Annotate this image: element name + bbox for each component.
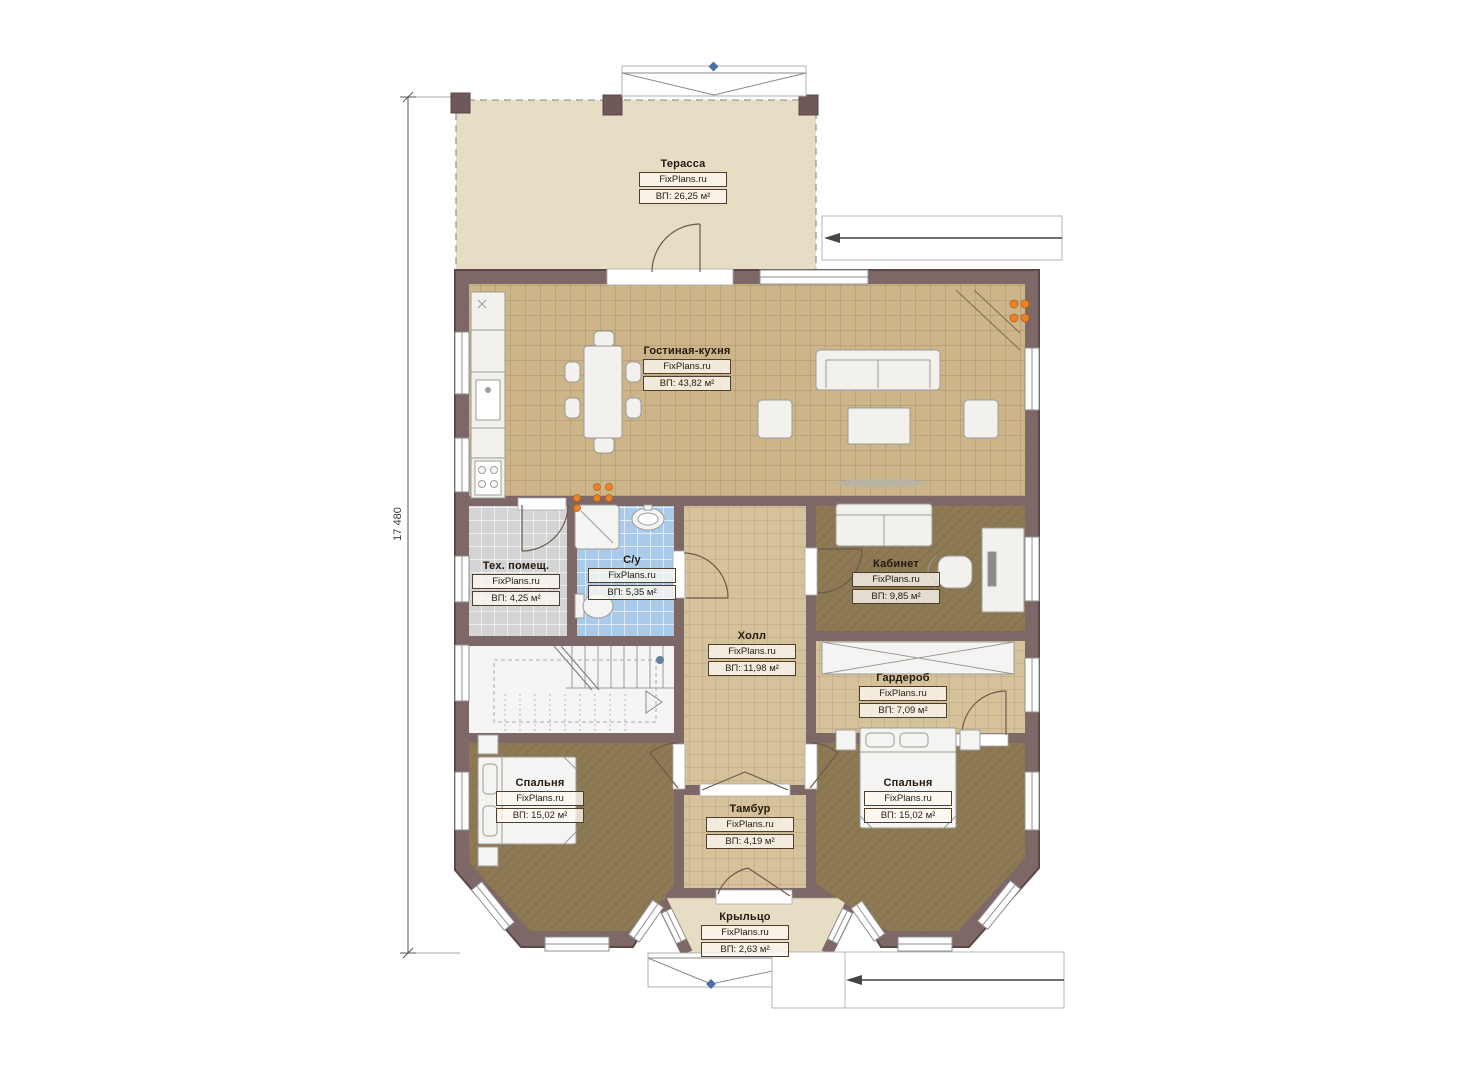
dining-chair (626, 362, 641, 382)
room-area: ВП: 26,25 м² (639, 189, 727, 204)
entrance-door-gap (716, 890, 792, 904)
armchair (758, 400, 792, 438)
room-brand: FixPlans.ru (706, 817, 794, 832)
window (455, 645, 469, 701)
room-area: ВП: 15,02 м² (864, 808, 952, 823)
living-kitchen-floor (469, 284, 1025, 496)
window (455, 332, 469, 394)
terrace-floor (456, 100, 816, 272)
room-brand: FixPlans.ru (639, 172, 727, 187)
nightstand (836, 730, 856, 750)
room-name: Холл (708, 630, 796, 642)
window (455, 556, 469, 602)
annotation-box-bottom (772, 952, 1064, 1008)
room-brand: FixPlans.ru (643, 359, 731, 374)
monitor (988, 552, 996, 586)
window (898, 937, 952, 951)
pillow (866, 733, 894, 747)
office-chair (938, 556, 972, 588)
tv-console (836, 479, 926, 487)
stair-marker (656, 656, 664, 664)
room-name: Крыльцо (701, 911, 789, 923)
dimension-line: 17 480 (392, 92, 460, 958)
tech-door-gap (518, 498, 566, 510)
room-brand: FixPlans.ru (864, 791, 952, 806)
terrace-column (603, 95, 622, 115)
kitchen-counter (471, 292, 505, 498)
kitchen-sink (476, 380, 500, 420)
room-label-bathroom: С/у FixPlans.ru ВП: 5,35 м² (588, 554, 676, 600)
dining-chair (594, 437, 614, 453)
window (1025, 348, 1039, 410)
window (1025, 658, 1039, 712)
room-name: Терасса (639, 158, 727, 170)
room-label-bedroom-right: Спальня FixPlans.ru ВП: 15,02 м² (864, 777, 952, 823)
room-name: Спальня (864, 777, 952, 789)
room-brand: FixPlans.ru (496, 791, 584, 806)
nightstand (478, 847, 498, 866)
room-brand: FixPlans.ru (472, 574, 560, 589)
dining-table (584, 346, 622, 438)
room-label-terrace: Терасса FixPlans.ru ВП: 26,25 м² (639, 158, 727, 204)
dining-chair (594, 331, 614, 347)
room-label-bedroom-left: Спальня FixPlans.ru ВП: 15,02 м² (496, 777, 584, 823)
floor-plan: 17 480 (0, 0, 1474, 1080)
window (1025, 772, 1039, 830)
room-area: ВП: 43,82 м² (643, 376, 731, 391)
terrace-canopy-marking (622, 62, 806, 96)
window (1025, 537, 1039, 601)
room-name: С/у (588, 554, 676, 566)
window (455, 772, 469, 830)
dining-chair (565, 398, 580, 418)
room-brand: FixPlans.ru (852, 572, 940, 587)
room-area: ВП: 5,35 м² (588, 585, 676, 600)
room-label-living-kitchen: Гостиная-кухня FixPlans.ru ВП: 43,82 м² (643, 345, 731, 391)
annotation-box-top (822, 216, 1062, 260)
room-brand: FixPlans.ru (701, 925, 789, 940)
dining-chair (565, 362, 580, 382)
room-name: Тамбур (706, 803, 794, 815)
coffee-table (848, 408, 910, 444)
nightstand (960, 730, 980, 750)
room-brand: FixPlans.ru (708, 644, 796, 659)
room-area: ВП: 4,25 м² (472, 591, 560, 606)
bedroom-left-door-gap (673, 744, 685, 789)
room-label-porch: Крыльцо FixPlans.ru ВП: 2,63 м² (701, 911, 789, 957)
room-area: ВП: 11,98 м² (708, 661, 796, 676)
room-area: ВП: 2,63 м² (701, 942, 789, 957)
room-label-hall: Холл FixPlans.ru ВП: 11,98 м² (708, 630, 796, 676)
room-brand: FixPlans.ru (859, 686, 947, 701)
room-area: ВП: 15,02 м² (496, 808, 584, 823)
nightstand (478, 735, 498, 754)
room-label-wardrobe: Гардероб FixPlans.ru ВП: 7,09 м² (859, 672, 947, 718)
room-label-vestibule: Тамбур FixPlans.ru ВП: 4,19 м² (706, 803, 794, 849)
office-door-gap (805, 548, 817, 595)
room-label-tech-room: Тех. помещ. FixPlans.ru ВП: 4,25 м² (472, 560, 560, 606)
room-area: ВП: 4,19 м² (706, 834, 794, 849)
pillow (483, 806, 497, 836)
pillow (900, 733, 928, 747)
terrace-column (451, 93, 470, 113)
armchair (964, 400, 998, 438)
room-name: Спальня (496, 777, 584, 789)
wardrobe-cabinet (822, 642, 1014, 674)
window (545, 937, 609, 951)
kitchen-stove (475, 461, 501, 495)
room-name: Гостиная-кухня (643, 345, 731, 357)
room-name: Кабинет (852, 558, 940, 570)
terrace (451, 62, 818, 272)
dimension-text: 17 480 (392, 507, 404, 541)
room-brand: FixPlans.ru (588, 568, 676, 583)
room-area: ВП: 9,85 м² (852, 589, 940, 604)
room-area: ВП: 7,09 м² (859, 703, 947, 718)
window (455, 438, 469, 492)
room-label-office: Кабинет FixPlans.ru ВП: 9,85 м² (852, 558, 940, 604)
room-name: Тех. помещ. (472, 560, 560, 572)
terrace-door-gap (607, 269, 733, 285)
room-name: Гардероб (859, 672, 947, 684)
dining-chair (626, 398, 641, 418)
pillow (483, 764, 497, 794)
terrace-column (799, 95, 818, 115)
window (760, 270, 868, 284)
